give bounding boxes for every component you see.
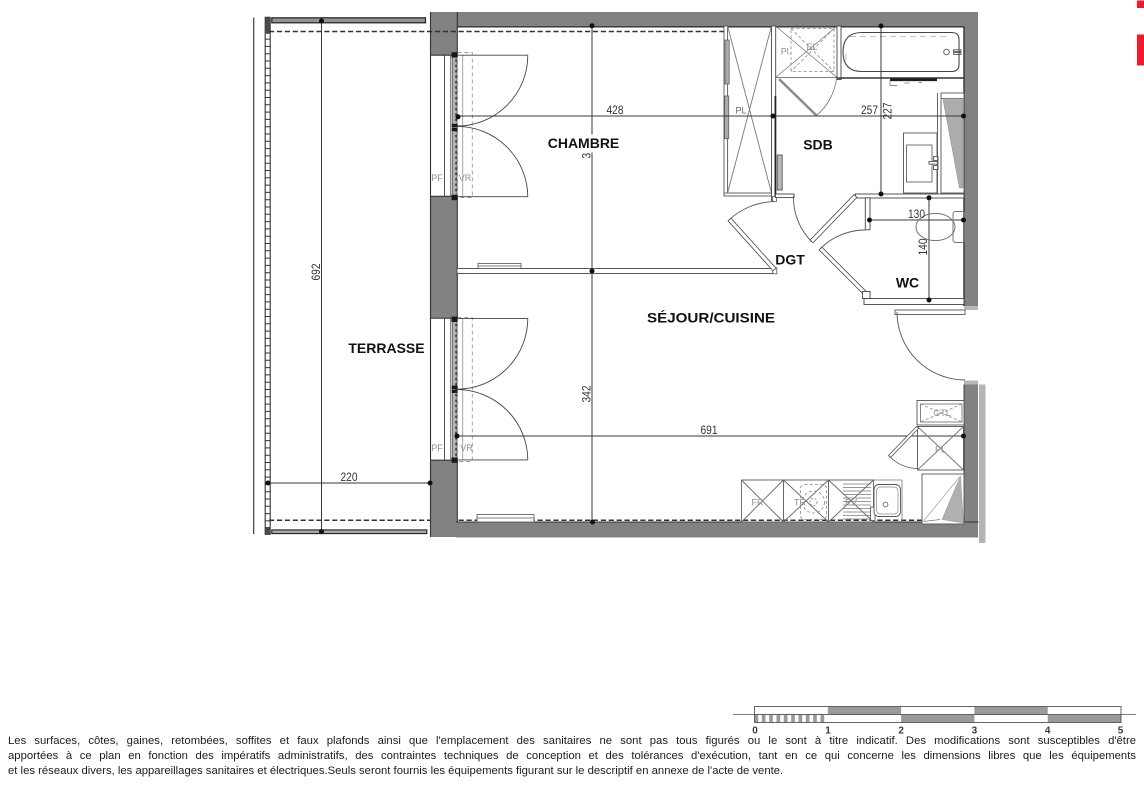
svg-text:257: 257 (861, 103, 878, 117)
svg-text:PL: PL (735, 106, 746, 116)
svg-text:SDB: SDB (803, 137, 833, 153)
svg-text:227: 227 (881, 102, 895, 119)
svg-text:428: 428 (607, 103, 624, 117)
svg-text:PL: PL (935, 445, 946, 455)
svg-text:GTL: GTL (933, 408, 951, 418)
svg-text:PF: PF (431, 443, 443, 453)
svg-text:342: 342 (580, 385, 594, 402)
svg-text:130: 130 (908, 207, 925, 221)
svg-text:FR: FR (752, 498, 764, 508)
svg-text:TR: TR (794, 498, 806, 508)
svg-text:DGT: DGT (775, 252, 805, 268)
svg-text:VR: VR (460, 443, 473, 453)
svg-text:PF: PF (431, 173, 443, 183)
svg-text:140: 140 (916, 238, 930, 255)
svg-text:692: 692 (309, 263, 323, 280)
svg-text:EL: EL (806, 42, 817, 52)
svg-text:220: 220 (341, 470, 358, 484)
svg-text:691: 691 (701, 423, 718, 437)
svg-text:Pl.: Pl. (781, 47, 792, 57)
svg-text:CHAMBRE: CHAMBRE (548, 135, 620, 151)
svg-text:VR: VR (459, 173, 472, 183)
svg-text:EV: EV (845, 498, 857, 508)
svg-text:TERRASSE: TERRASSE (348, 340, 424, 356)
svg-text:WC: WC (896, 275, 919, 291)
svg-text:SÉJOUR/CUISINE: SÉJOUR/CUISINE (647, 310, 775, 326)
